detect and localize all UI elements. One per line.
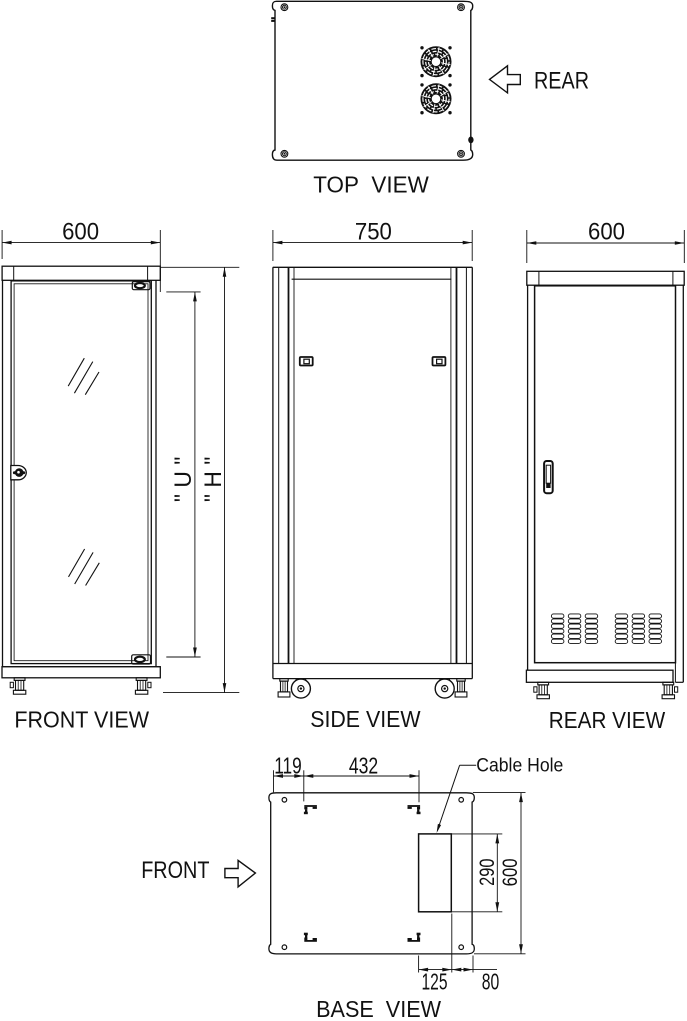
svg-text:FRONT: FRONT <box>141 857 210 884</box>
svg-text:125: 125 <box>422 969 448 995</box>
svg-text:REAR: REAR <box>534 67 589 94</box>
svg-text:750: 750 <box>355 219 392 246</box>
svg-text:TOP VIEW: TOP VIEW <box>313 171 429 197</box>
svg-text:SIDE VIEW: SIDE VIEW <box>310 706 421 732</box>
svg-text:600: 600 <box>498 858 522 886</box>
svg-text:80: 80 <box>482 969 500 995</box>
svg-text:REAR VIEW: REAR VIEW <box>549 707 666 733</box>
svg-text:" U ": " U " <box>170 457 197 503</box>
svg-text:432: 432 <box>349 753 378 779</box>
svg-text:290: 290 <box>475 859 499 886</box>
svg-text:BASE VIEW: BASE VIEW <box>316 996 442 1021</box>
svg-text:600: 600 <box>62 219 99 246</box>
svg-text:Cable Hole: Cable Hole <box>476 755 563 776</box>
svg-text:119: 119 <box>274 753 302 779</box>
svg-text:" H ": " H " <box>200 457 227 503</box>
svg-text:600: 600 <box>588 219 625 246</box>
svg-text:FRONT VIEW: FRONT VIEW <box>14 707 149 733</box>
